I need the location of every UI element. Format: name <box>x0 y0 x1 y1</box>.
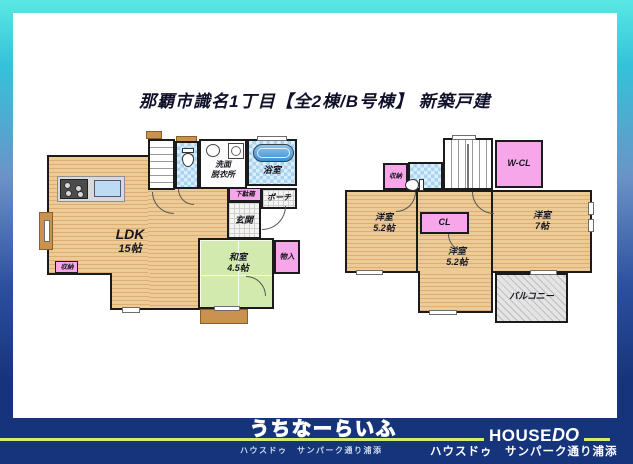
toilet-icon <box>180 148 196 168</box>
brand-subtitle: ハウスドゥ サンパーク通り浦添 <box>240 447 383 455</box>
kitchen-sink-icon <box>94 180 121 197</box>
deck-bottom <box>200 309 248 324</box>
room-toilet-1f <box>175 141 199 189</box>
room-left-label: 洋室 5.2帖 <box>352 212 416 234</box>
stove-icon <box>60 179 88 199</box>
room-washitsu-label: 和室 4.5帖 <box>202 252 274 274</box>
porch-label: ポーチ <box>261 193 297 203</box>
room-ldk-label: LDK 15帖 <box>75 226 185 256</box>
closet-cl-label: CL <box>420 217 469 228</box>
housedo-logo: HOUSEDO <box>484 426 584 446</box>
room-bath <box>247 139 297 186</box>
window <box>122 307 140 313</box>
room-right-label: 洋室 7帖 <box>510 210 574 232</box>
walk-in-closet-label: W-CL <box>495 158 543 169</box>
window <box>588 219 594 232</box>
shoe-box: 下駄箱 <box>229 188 261 201</box>
page-title: 那覇市識名1丁目【全2棟/B号棟】 新築戸建 <box>13 92 617 112</box>
window <box>44 220 50 242</box>
wall <box>416 190 418 273</box>
bathtub-icon <box>253 144 294 162</box>
room-washroom-label: 洗面 脱衣所 <box>199 160 247 179</box>
stairs-1f <box>148 139 175 190</box>
room-center-area <box>418 271 493 313</box>
brand-wordmark: うちなーらいふ <box>250 420 397 439</box>
window <box>530 270 557 275</box>
window <box>452 135 476 140</box>
balcony-label: バルコニー <box>499 291 564 302</box>
toilet-icon <box>404 177 424 193</box>
closet-monoire-label: 物入 <box>274 253 300 261</box>
room-ldk-area <box>47 155 150 275</box>
stairs-2f <box>443 138 493 190</box>
housedo-logo-do: DO <box>552 425 579 445</box>
window <box>214 306 240 311</box>
window <box>257 136 287 141</box>
window <box>429 310 457 315</box>
room-toilet-2f <box>408 162 443 190</box>
storage-1f: 収納 <box>55 261 78 273</box>
washbasin-icon <box>206 144 220 157</box>
shoe-box-label: 下駄箱 <box>230 191 260 198</box>
floor1-eave <box>146 131 162 139</box>
entrance-label: 玄関 <box>227 215 261 226</box>
housedo-logo-house: HOUSE <box>489 426 552 445</box>
window <box>588 202 594 215</box>
washer-icon <box>228 143 244 159</box>
room-bath-label: 浴室 <box>247 165 297 176</box>
room-ldk-area <box>110 273 150 310</box>
storage-1f-label: 収納 <box>56 264 78 271</box>
window <box>356 270 383 275</box>
store-name: ハウスドゥ サンパーク通り浦添 <box>430 447 618 459</box>
